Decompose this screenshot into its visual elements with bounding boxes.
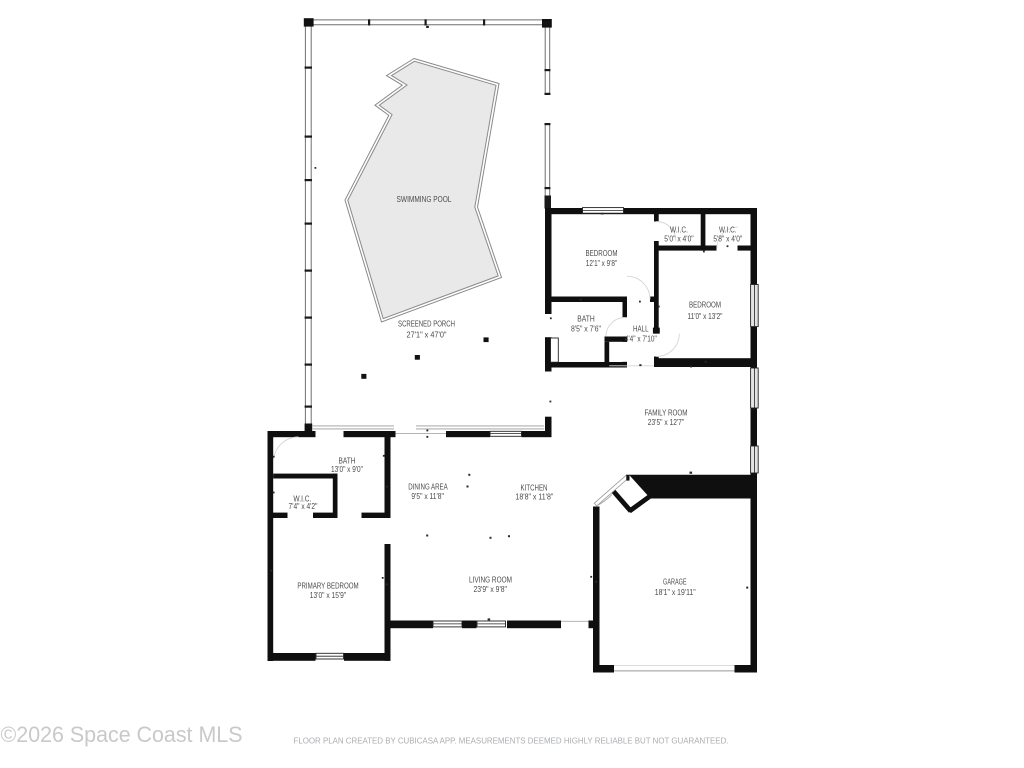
svg-text:5'0" x 4'0": 5'0" x 4'0" (664, 234, 694, 244)
svg-text:23'9" x 9'8": 23'9" x 9'8" (473, 584, 507, 594)
svg-text:BATH: BATH (577, 314, 594, 324)
svg-text:4'4" x 7'10": 4'4" x 7'10" (625, 334, 657, 344)
svg-text:SWIMMING POOL: SWIMMING POOL (397, 194, 452, 204)
svg-text:13'0" x 9'0": 13'0" x 9'0" (331, 464, 363, 474)
svg-text:23'5" x 12'7": 23'5" x 12'7" (648, 417, 685, 427)
svg-text:GARAGE: GARAGE (663, 579, 687, 587)
svg-text:©2026 Space Coast MLS: ©2026 Space Coast MLS (1, 722, 243, 747)
svg-text:18'8" x 11'8": 18'8" x 11'8" (515, 492, 553, 502)
svg-text:HALL: HALL (633, 325, 648, 334)
svg-text:FLOOR PLAN CREATED BY CUBICASA: FLOOR PLAN CREATED BY CUBICASA APP. MEAS… (294, 737, 729, 746)
svg-text:7'4" x 4'2": 7'4" x 4'2" (289, 501, 318, 511)
svg-text:13'0" x 15'9": 13'0" x 15'9" (310, 590, 347, 600)
svg-text:18'1" x 19'11": 18'1" x 19'11" (655, 587, 696, 597)
svg-text:SCREENED PORCH: SCREENED PORCH (398, 320, 455, 329)
svg-text:11'0" x 13'2": 11'0" x 13'2" (688, 311, 723, 321)
svg-text:8'5" x 7'6": 8'5" x 7'6" (571, 324, 601, 334)
svg-text:5'8" x 4'0": 5'8" x 4'0" (713, 234, 742, 244)
svg-text:FAMILY ROOM: FAMILY ROOM (645, 409, 688, 418)
svg-text:12'1" x 9'8": 12'1" x 9'8" (586, 258, 618, 268)
svg-text:27'1" x 47'0": 27'1" x 47'0" (407, 330, 447, 339)
svg-text:BEDROOM: BEDROOM (689, 301, 721, 310)
svg-text:LIVING ROOM: LIVING ROOM (469, 575, 512, 585)
svg-text:DINING AREA: DINING AREA (408, 483, 448, 492)
svg-text:BEDROOM: BEDROOM (586, 249, 618, 258)
svg-text:9'5" x 11'8": 9'5" x 11'8" (411, 491, 444, 501)
